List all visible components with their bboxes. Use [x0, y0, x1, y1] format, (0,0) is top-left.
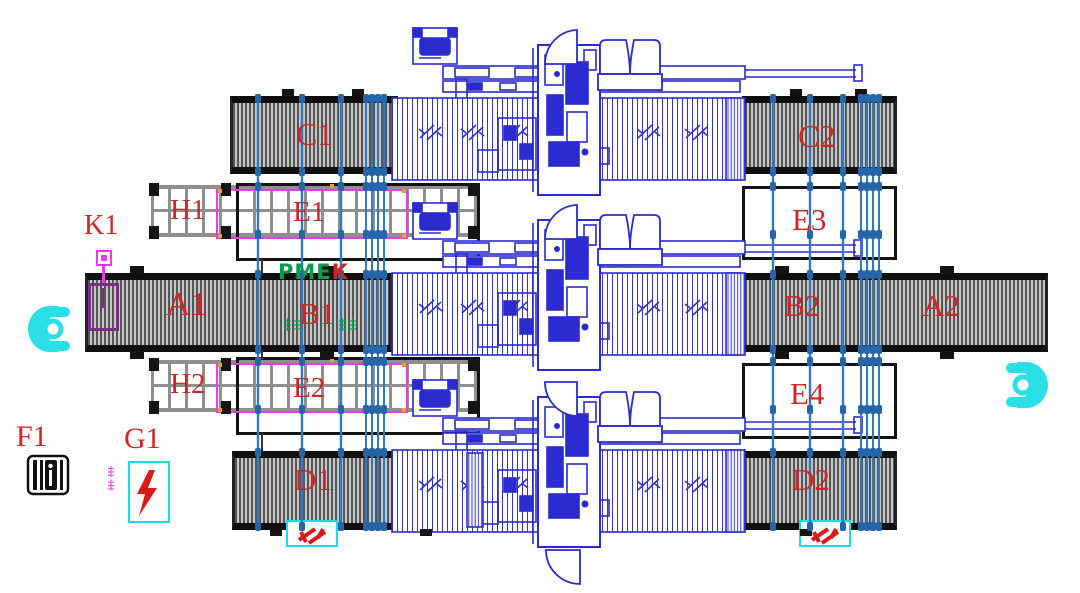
machinery-overlay — [0, 0, 1080, 593]
label-a1: A1 — [166, 288, 208, 322]
label-h1: H1 — [170, 196, 205, 225]
label-e4: E4 — [790, 378, 824, 409]
label-a2: A2 — [922, 290, 960, 321]
operator-icon-left — [28, 306, 70, 352]
label-f1: F1 — [16, 422, 48, 452]
power-lightning-icon — [137, 470, 157, 516]
g1-subtext-marks — [108, 466, 114, 491]
panel-connector — [467, 453, 483, 527]
operator-icon-right — [1006, 362, 1048, 408]
label-c2: C2 — [798, 120, 835, 152]
frame-links — [262, 259, 372, 452]
label-b1: B1 — [299, 298, 335, 329]
label-k1: K1 — [84, 212, 118, 240]
pmek-logo: PMEK — [278, 262, 349, 283]
label-e2: E2 — [293, 374, 325, 403]
electrical-cabinet-icon — [28, 456, 68, 494]
maintenance-lightning-icon-d2 — [812, 529, 838, 543]
pmek-logo-red: K — [332, 260, 349, 284]
label-g1: G1 — [124, 424, 161, 454]
label-e3: E3 — [792, 204, 826, 235]
label-d1: D1 — [294, 464, 332, 495]
label-b2: B2 — [784, 290, 820, 321]
label-d2: D2 — [792, 464, 830, 495]
label-c1: C1 — [296, 118, 333, 150]
maintenance-lightning-icon-d1 — [299, 529, 325, 543]
label-h2: H2 — [170, 370, 205, 399]
pmek-logo-green: PME — [278, 260, 332, 284]
floor-plan-canvas: PMEK C1 C2 H1 E1 K1 A1 B1 E3 B2 A2 H2 E2… — [0, 0, 1080, 593]
label-e1: E1 — [293, 198, 325, 227]
